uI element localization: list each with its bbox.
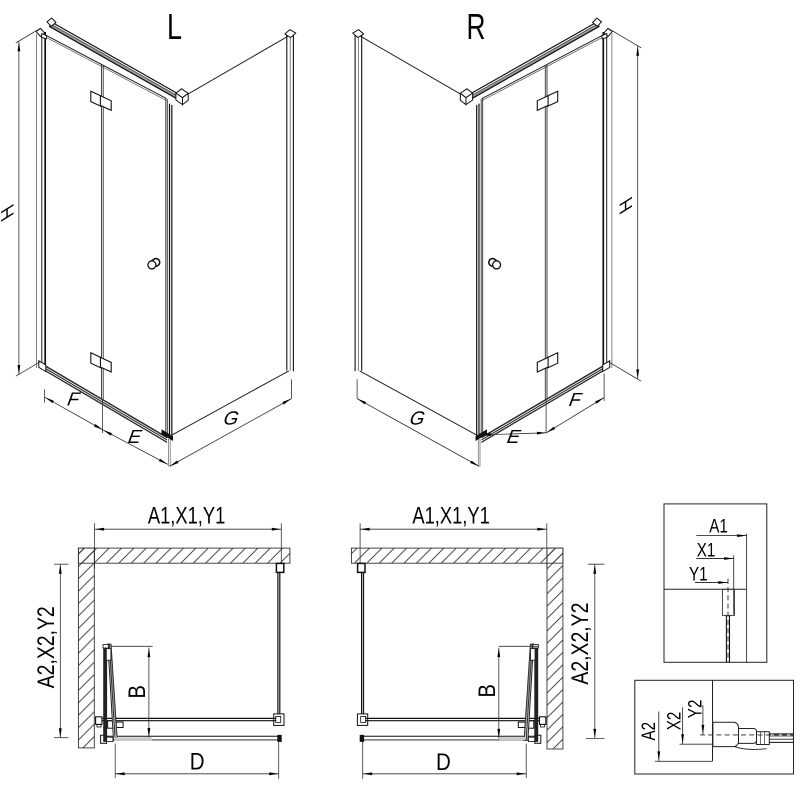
svg-text:X1: X1: [697, 540, 716, 561]
svg-text:Y2: Y2: [685, 700, 706, 719]
svg-text:L: L: [167, 6, 182, 47]
svg-text:A2: A2: [639, 722, 660, 741]
svg-text:X2: X2: [664, 712, 685, 731]
svg-text:D: D: [436, 749, 451, 776]
svg-text:R: R: [467, 6, 486, 47]
svg-text:A2,X2,Y2: A2,X2,Y2: [567, 603, 594, 685]
svg-text:A1,X1,Y1: A1,X1,Y1: [148, 503, 226, 530]
svg-text:A1: A1: [709, 516, 728, 537]
svg-text:A1,X1,Y1: A1,X1,Y1: [412, 503, 490, 530]
svg-text:B: B: [474, 684, 501, 698]
svg-text:Y1: Y1: [689, 564, 708, 585]
svg-text:D: D: [190, 749, 205, 776]
svg-text:A2,X2,Y2: A2,X2,Y2: [33, 606, 60, 688]
svg-text:B: B: [124, 685, 151, 699]
